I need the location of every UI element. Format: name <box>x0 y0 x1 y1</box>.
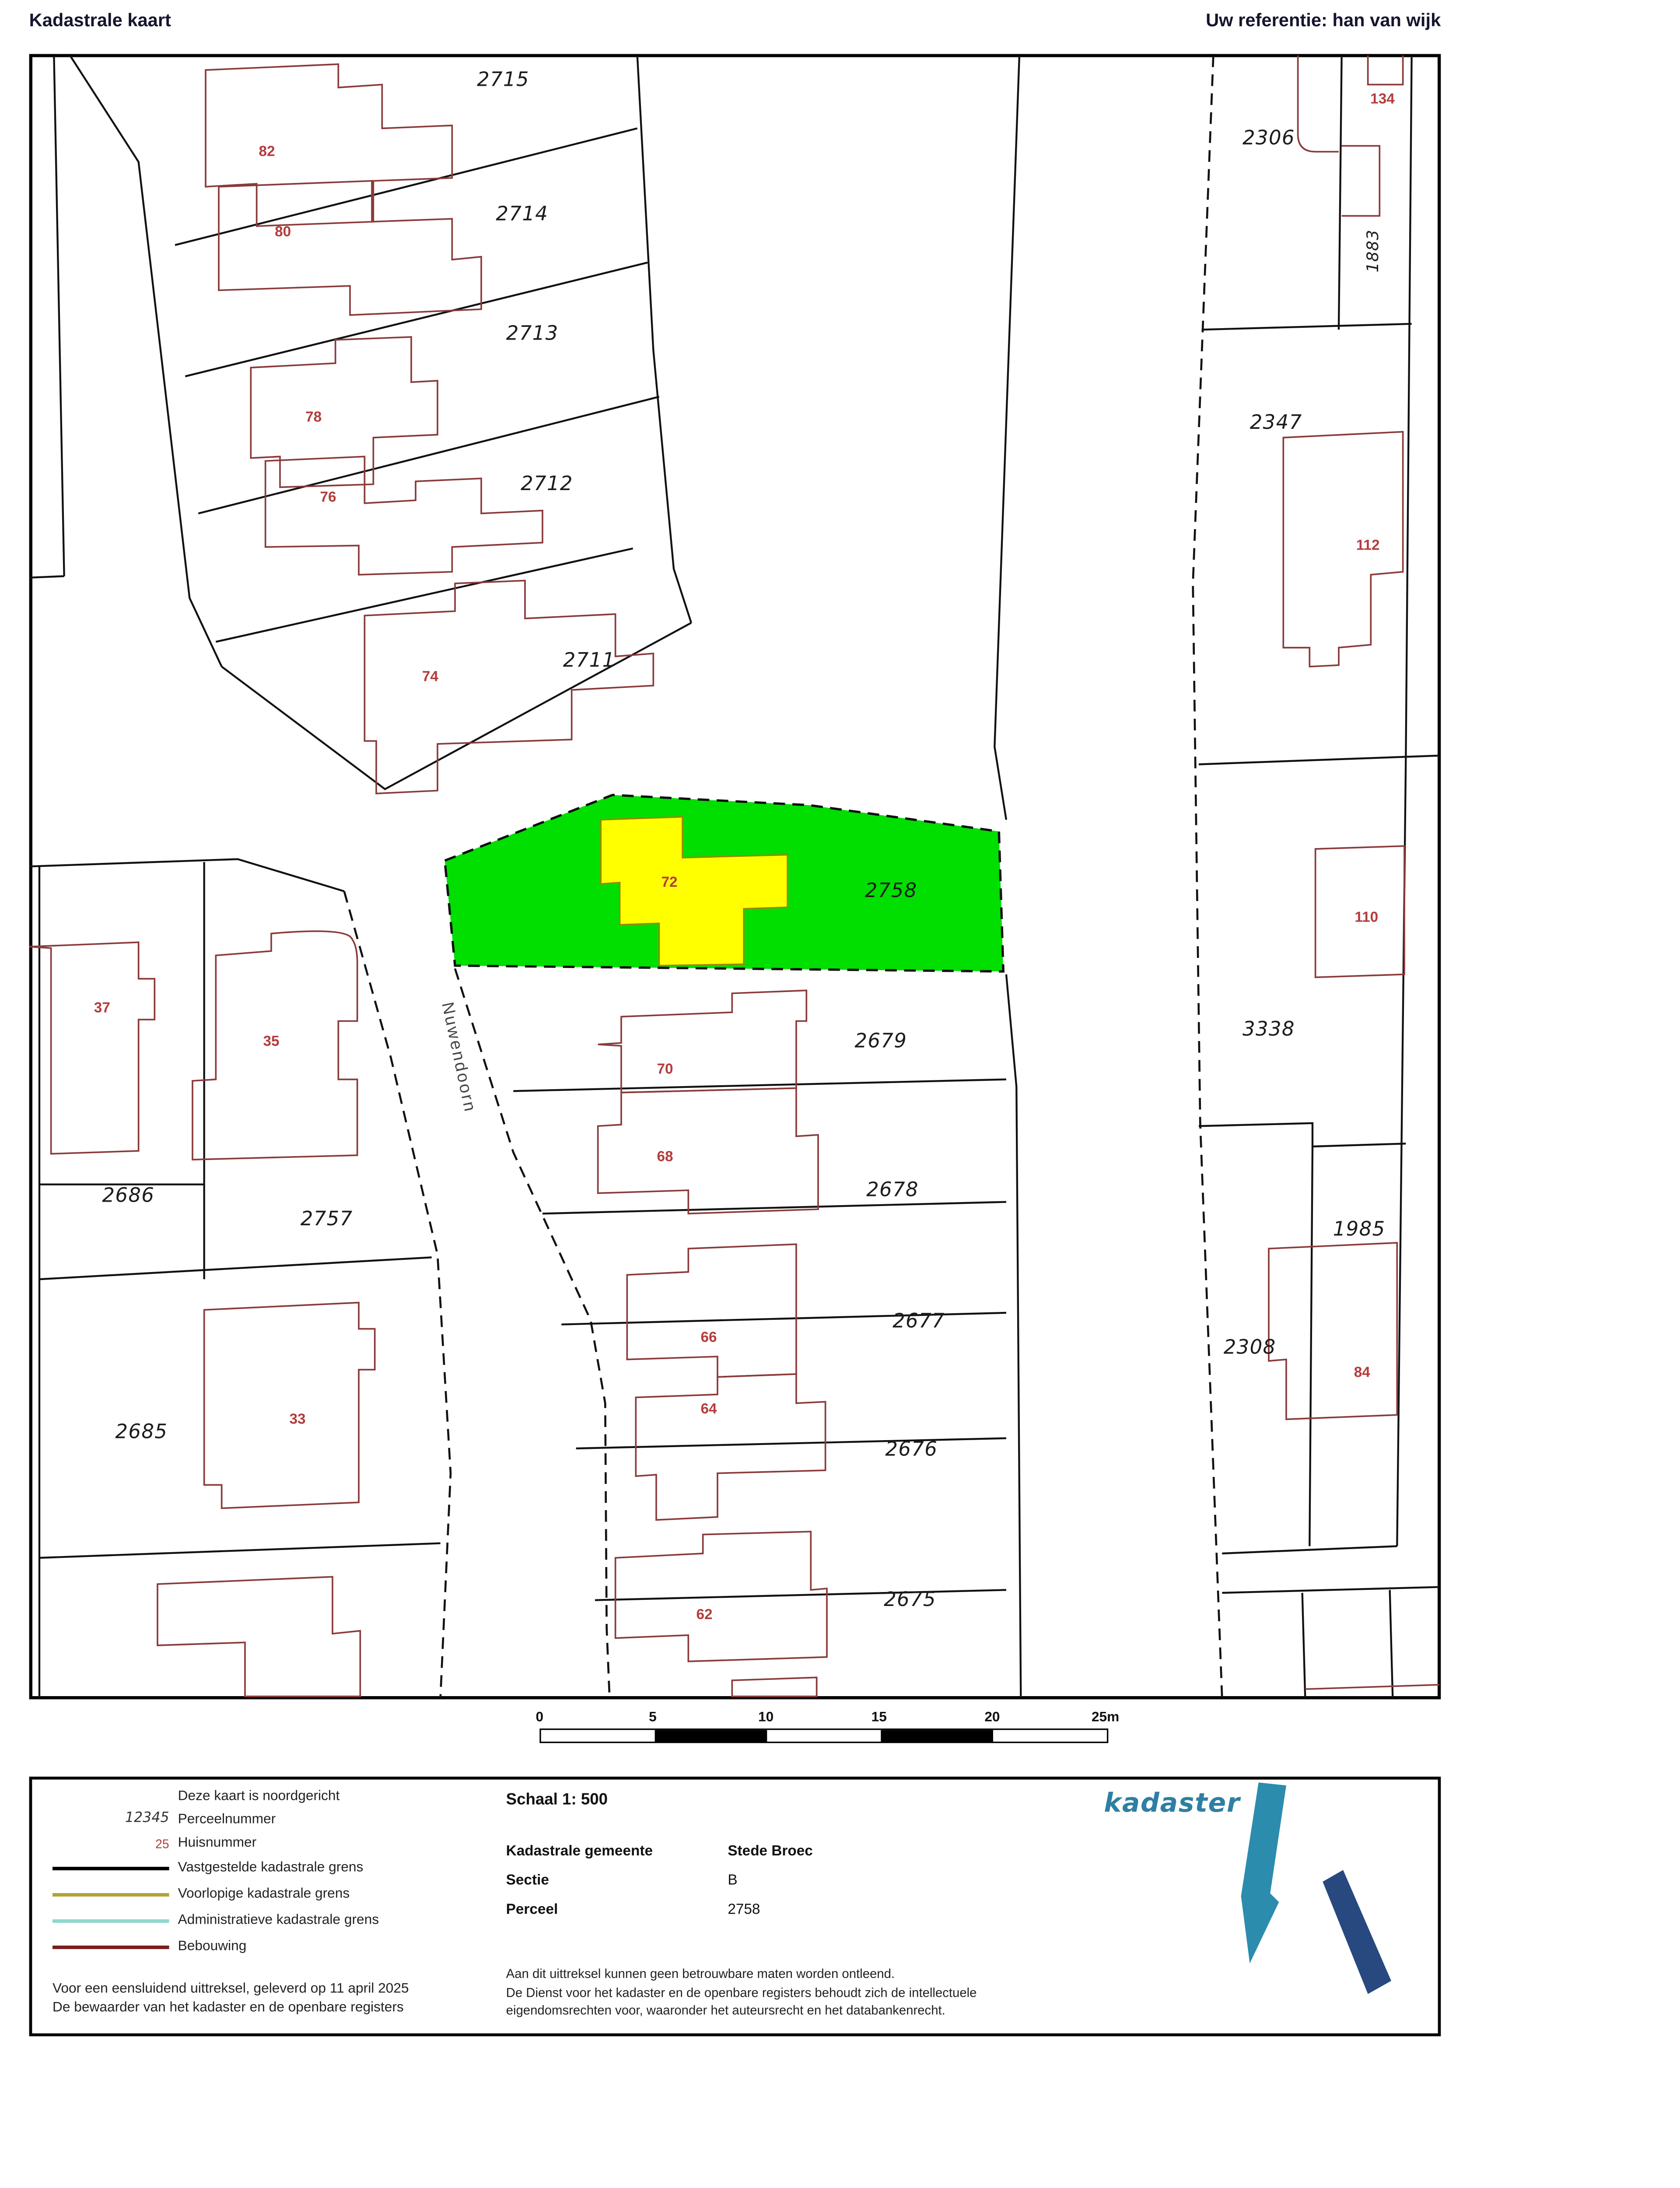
logo-stroke-light <box>1241 1782 1286 1963</box>
parcel-label-2714: 2714 <box>496 202 548 225</box>
legend-line-vastgesteld-swatch <box>52 1865 169 1871</box>
legend-line-voorlopig-swatch <box>52 1892 169 1897</box>
house-label-74: 74 <box>422 669 439 685</box>
legend-footer-1: Voor een eensluidend uittreksel, gelever… <box>52 1981 409 1997</box>
perceel-value: 2758 <box>728 1902 760 1918</box>
legend-line-bebouwing-swatch <box>52 1944 169 1950</box>
parcel-label-2308: 2308 <box>1224 1335 1276 1358</box>
house-label-78: 78 <box>305 409 322 425</box>
house-label-37: 37 <box>94 999 110 1016</box>
scale-segment-4 <box>881 1730 994 1742</box>
disclaimer-line-1: Aan dit uittreksel kunnen geen betrouwba… <box>506 1966 895 1981</box>
house-label-76: 76 <box>320 489 336 505</box>
legend-line-voorlopig-label: Voorlopige kadastrale grens <box>178 1886 350 1902</box>
scale-tick-10: 10 <box>758 1710 773 1726</box>
house-label-80: 80 <box>275 224 291 240</box>
page-title: Kadastrale kaart <box>29 10 171 31</box>
scale-tick-25: 25m <box>1092 1710 1119 1726</box>
house-label-72: 72 <box>661 874 677 891</box>
legend-house-sample: 25 <box>52 1837 169 1851</box>
scale-segment-1 <box>541 1730 654 1742</box>
house-label-134: 134 <box>1370 91 1395 107</box>
kadaster-logo-text: kadaster <box>1104 1788 1240 1819</box>
house-label-70: 70 <box>657 1061 673 1077</box>
house-label-110: 110 <box>1354 909 1378 926</box>
gemeente-label: Kadastrale gemeente <box>506 1844 653 1860</box>
house-label-33: 33 <box>289 1411 305 1427</box>
logo-stroke-dark <box>1323 1870 1391 1994</box>
scale-tick-20: 20 <box>984 1710 1000 1726</box>
legend-footer-2: De bewaarder van het kadaster en de open… <box>52 2000 404 2016</box>
sectie-value: B <box>728 1873 737 1889</box>
legend-house-label: Huisnummer <box>178 1835 257 1851</box>
parcel-label-2713: 2713 <box>506 322 559 345</box>
parcel-label-2715: 2715 <box>477 68 529 91</box>
legend-line-administratief-label: Administratieve kadastrale grens <box>178 1912 379 1929</box>
house-label-35: 35 <box>263 1033 279 1049</box>
parcel-label-2679: 2679 <box>854 1029 907 1052</box>
parcel-label-2306: 2306 <box>1242 126 1295 149</box>
parcel-label-1883: 1883 <box>1363 229 1382 273</box>
legend-line-administratief-swatch <box>52 1918 169 1924</box>
parcel-label-2712: 2712 <box>521 472 573 495</box>
cadastral-extract-page: Kadastrale kaart Uw referentie: han van … <box>0 0 1680 2188</box>
cadastral-map: 2715 2714 2713 2712 2711 2758 2679 2678 … <box>29 54 1441 1699</box>
scale-segment-5 <box>994 1730 1107 1742</box>
parcel-label-3338: 3338 <box>1242 1017 1295 1041</box>
legend-line-vastgesteld-label: Vastgestelde kadastrale grens <box>178 1860 364 1876</box>
parcel-label-2757: 2757 <box>301 1207 353 1230</box>
sectie-label: Sectie <box>506 1873 549 1889</box>
parcel-label-2678: 2678 <box>866 1178 919 1201</box>
legend-north-note: Deze kaart is noordgericht <box>178 1788 340 1805</box>
house-label-68: 68 <box>657 1148 673 1164</box>
house-label-62: 62 <box>696 1606 712 1623</box>
scale-segment-3 <box>767 1730 881 1742</box>
scale-tick-15: 15 <box>871 1710 887 1726</box>
scale-segment-2 <box>654 1730 767 1742</box>
scale-tick-0: 0 <box>535 1710 543 1726</box>
parcel-label-1985: 1985 <box>1333 1217 1386 1240</box>
parcel-label-2347: 2347 <box>1250 410 1302 434</box>
house-label-66: 66 <box>700 1329 717 1346</box>
parcel-label-2758: 2758 <box>865 879 917 902</box>
house-label-84: 84 <box>1354 1364 1371 1381</box>
legend-parcel-label: Perceelnummer <box>178 1812 276 1828</box>
parcel-label-2685: 2685 <box>115 1420 168 1443</box>
scale-bar-segments <box>539 1729 1108 1743</box>
legend-line-bebouwing-label: Bebouwing <box>178 1939 247 1955</box>
disclaimer-line-3: eigendomsrechten voor, waaronder het aut… <box>506 2003 945 2017</box>
kadaster-logo-icon <box>1221 1782 1396 2027</box>
house-label-64: 64 <box>700 1401 717 1417</box>
gemeente-value: Stede Broec <box>728 1844 813 1860</box>
house-label-82: 82 <box>259 144 275 160</box>
parcel-label-2676: 2676 <box>885 1438 938 1461</box>
parcel-label-2675: 2675 <box>884 1588 936 1611</box>
scale-bar: 0 5 10 15 20 25m <box>539 1710 1111 1748</box>
house-label-112: 112 <box>1356 537 1380 554</box>
scale-tick-5: 5 <box>649 1710 657 1726</box>
parcel-label-2686: 2686 <box>102 1184 154 1207</box>
info-box: Deze kaart is noordgericht 12345 Perceel… <box>29 1777 1441 2036</box>
reference-text: Uw referentie: han van wijk <box>1206 10 1441 31</box>
parcel-label-2711: 2711 <box>563 648 616 671</box>
perceel-label: Perceel <box>506 1902 558 1918</box>
legend-parcel-sample: 12345 <box>52 1810 169 1827</box>
scale-label: Schaal 1: 500 <box>506 1791 608 1809</box>
parcel-label-2677: 2677 <box>892 1309 945 1332</box>
disclaimer-line-2: De Dienst voor het kadaster en de openba… <box>506 1985 977 2000</box>
